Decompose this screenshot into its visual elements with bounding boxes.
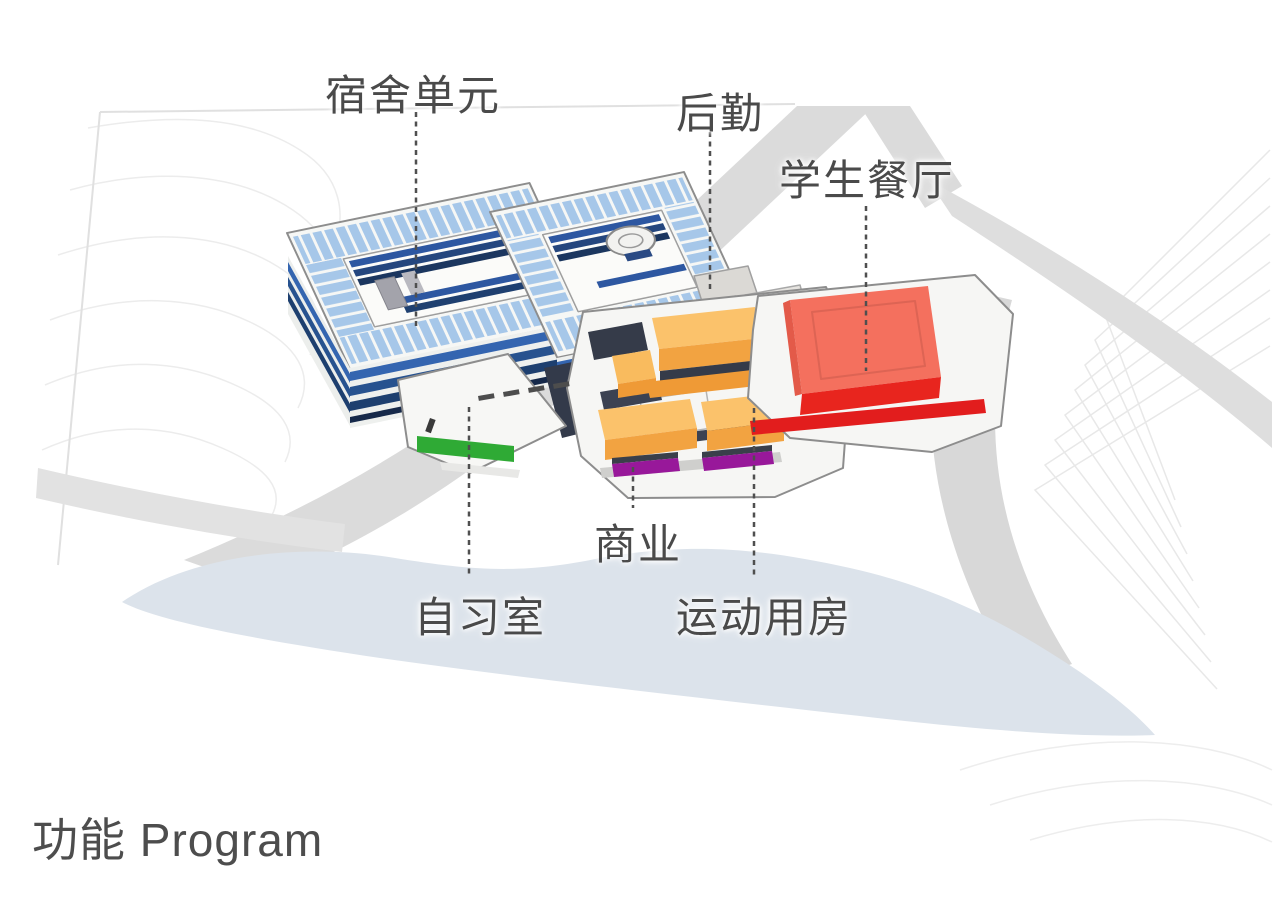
label-dormitory: 宿舍单元 bbox=[325, 62, 501, 123]
page-title: 功能 Program bbox=[32, 804, 323, 870]
contour-lines-bottom-right bbox=[960, 742, 1272, 842]
contour-lines-right bbox=[1035, 150, 1270, 689]
label-cafeteria: 学生餐厅 bbox=[779, 147, 955, 208]
label-commercial: 商业 bbox=[594, 511, 682, 572]
cafeteria-building bbox=[748, 275, 1013, 452]
site-plan-svg bbox=[0, 0, 1280, 897]
label-study: 自习室 bbox=[414, 584, 546, 645]
label-sports: 运动用房 bbox=[676, 584, 852, 645]
label-logistics: 后勤 bbox=[676, 80, 764, 141]
program-diagram: 宿舍单元 后勤 学生餐厅 商业 自习室 运动用房 功能 Program bbox=[0, 0, 1280, 897]
